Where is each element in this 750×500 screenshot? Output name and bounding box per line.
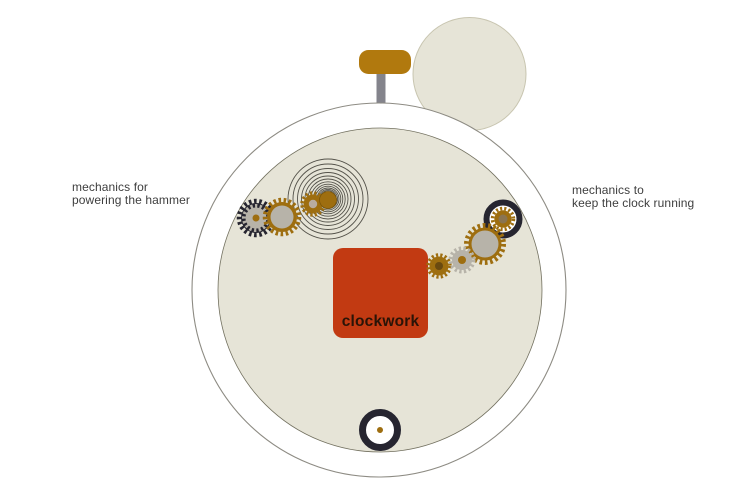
left-annotation-line2: powering the hammer bbox=[72, 194, 190, 207]
clockwork-diagram: mechanics for powering the hammer mechan… bbox=[0, 0, 750, 500]
mainspring-arbor bbox=[320, 192, 337, 209]
left-annotation: mechanics for powering the hammer bbox=[72, 181, 190, 207]
clockwork-label: clockwork bbox=[333, 248, 428, 338]
right-annotation-line2: keep the clock running bbox=[572, 197, 694, 210]
balance-wheel bbox=[363, 413, 398, 448]
winding-crown bbox=[359, 50, 411, 74]
right-annotation: mechanics to keep the clock running bbox=[572, 184, 694, 210]
